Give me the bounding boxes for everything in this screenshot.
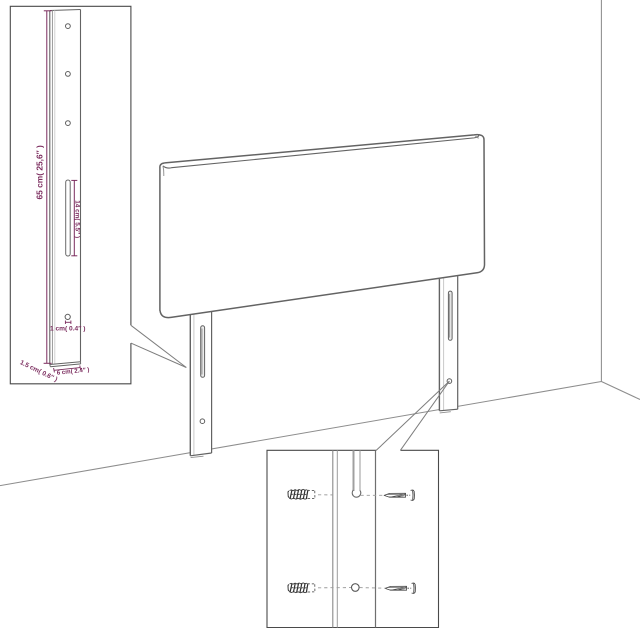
svg-text:65 cm( 25,6″ ): 65 cm( 25,6″ ) bbox=[35, 145, 45, 200]
svg-text:14 cm( 5.5″ ): 14 cm( 5.5″ ) bbox=[74, 200, 81, 238]
svg-text:1 cm( 0.4″ ): 1 cm( 0.4″ ) bbox=[50, 326, 85, 333]
